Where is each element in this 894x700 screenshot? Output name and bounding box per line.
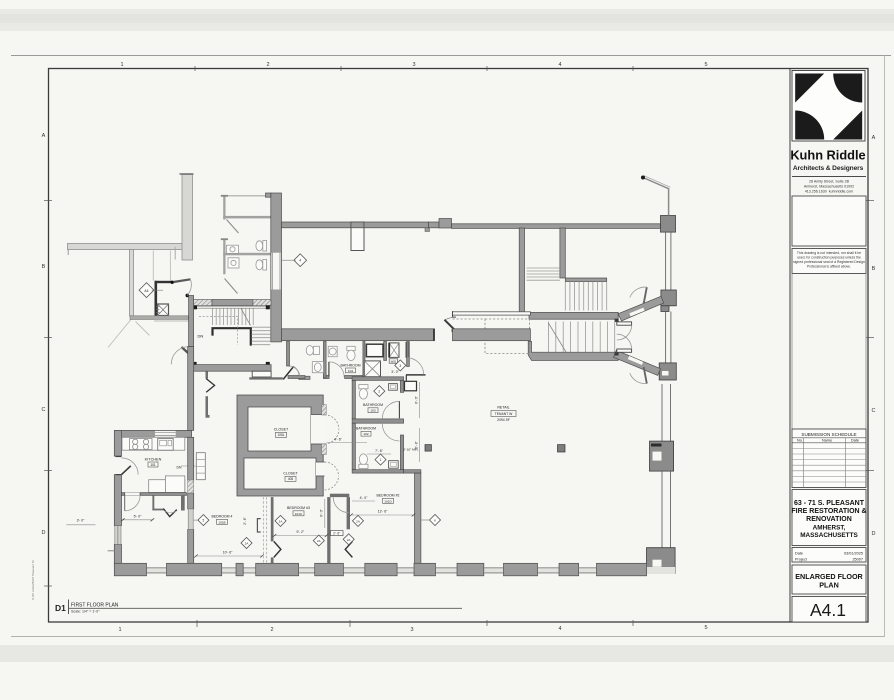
svg-text:105L: 105L [277, 433, 284, 437]
svg-text:KITCHEN: KITCHEN [145, 457, 162, 461]
svg-text:2: 2 [270, 627, 273, 633]
svg-text:FIRST FLOOR PLAN: FIRST FLOOR PLAN [71, 603, 119, 609]
svg-text:4: 4 [558, 62, 561, 68]
svg-text:5'- 0": 5'- 0" [134, 515, 142, 519]
svg-text:AMHERST,: AMHERST, [813, 525, 846, 532]
svg-text:Professional is affixed above.: Professional is affixed above. [807, 265, 851, 269]
svg-text:CLOSET: CLOSET [283, 472, 298, 476]
svg-text:D1: D1 [55, 603, 66, 613]
svg-text:Architects & Designers: Architects & Designers [793, 165, 864, 172]
svg-text:3'- 0": 3'- 0" [77, 519, 85, 523]
svg-text:104: 104 [348, 369, 353, 373]
svg-text:D: D [872, 531, 876, 537]
svg-text:103: 103 [370, 409, 375, 413]
svg-text:4: 4 [299, 259, 301, 263]
svg-text:10'- 6": 10'- 6" [223, 551, 233, 555]
svg-text:1: 1 [120, 62, 123, 68]
svg-text:2A: 2A [347, 538, 351, 542]
svg-text:C: C [42, 407, 46, 413]
svg-text:405: 405 [288, 477, 294, 481]
svg-text:1: 1 [118, 627, 121, 633]
svg-text:Date: Date [851, 439, 859, 443]
svg-text:Scale: 1/4" = 1'-0": Scale: 1/4" = 1'-0" [71, 610, 100, 614]
svg-text:signed professional seal of a: signed professional seal of a Registered… [793, 260, 865, 264]
svg-text:A: A [42, 133, 46, 139]
svg-text:5: 5 [704, 625, 707, 631]
svg-text:B: B [872, 266, 876, 272]
svg-text:4'- 6": 4'- 6" [334, 438, 342, 442]
svg-text:2: 2 [378, 390, 380, 394]
svg-text:2A: 2A [356, 519, 360, 523]
svg-text:28 Amity Street, Suite 2B: 28 Amity Street, Suite 2B [809, 180, 850, 184]
svg-text:3: 3 [410, 627, 413, 633]
svg-text:A: A [872, 135, 876, 141]
svg-text:W/D: W/D [391, 359, 396, 363]
svg-text:Name: Name [822, 439, 832, 443]
svg-text:RENOVATION: RENOVATION [806, 516, 852, 523]
svg-text:63 - 71 S. PLEASANT: 63 - 71 S. PLEASANT [794, 500, 865, 507]
svg-text:25007: 25007 [852, 558, 863, 562]
svg-text:S:\25 Jobs\25007 Pleasant St: S:\25 Jobs\25007 Pleasant St [31, 560, 35, 600]
svg-text:101B: 101B [218, 520, 225, 524]
svg-text:A4: A4 [144, 289, 148, 293]
svg-text:2'- 6": 2'- 6" [243, 516, 247, 524]
svg-text:MASSACHUSETTS: MASSACHUSETTS [800, 532, 858, 539]
svg-text:D: D [42, 530, 46, 536]
svg-text:12'- 6": 12'- 6" [378, 510, 388, 514]
svg-text:9'- 2": 9'- 2" [296, 530, 304, 534]
svg-text:3: 3 [412, 62, 415, 68]
svg-text:6'- 8": 6'- 8" [414, 440, 418, 448]
svg-text:This drawing is not intended,: This drawing is not intended, nor shall … [797, 251, 861, 255]
svg-text:C: C [872, 408, 876, 414]
svg-text:BATHROOM: BATHROOM [356, 427, 376, 431]
svg-text:B: B [42, 264, 46, 270]
svg-text:SUBMISSION SCHEDULE: SUBMISSION SCHEDULE [801, 432, 856, 437]
svg-text:101C: 101C [295, 512, 303, 516]
svg-text:CLOSET: CLOSET [274, 428, 289, 432]
svg-text:TENANT W: TENANT W [495, 412, 513, 416]
svg-text:2: 2 [266, 62, 269, 68]
svg-text:6'- 0": 6'- 0" [319, 508, 323, 516]
svg-text:Date: Date [795, 552, 803, 556]
svg-text:7'- 6": 7'- 6" [375, 449, 383, 453]
svg-text:DN: DN [198, 334, 204, 339]
svg-text:5: 5 [704, 62, 707, 68]
svg-text:101D: 101D [384, 499, 392, 503]
svg-text:1: 1 [380, 458, 382, 462]
svg-text:A4.1: A4.1 [810, 600, 846, 620]
svg-text:03/01/2025: 03/01/2025 [844, 552, 863, 556]
svg-text:RETAIL: RETAIL [497, 406, 509, 410]
svg-text:6'- 0": 6'- 0" [414, 395, 418, 403]
svg-text:BEDROOM #3: BEDROOM #3 [287, 506, 310, 510]
svg-text:102: 102 [363, 432, 368, 436]
svg-text:3: 3 [399, 364, 401, 368]
svg-text:BEDROOM #2: BEDROOM #2 [377, 494, 400, 498]
svg-text:Amherst, Massachusetts 01002: Amherst, Massachusetts 01002 [804, 185, 854, 189]
svg-text:413.256.1630 kuhnriddle.com: 413.256.1630 kuhnriddle.com [805, 190, 853, 194]
svg-text:PLAN: PLAN [819, 581, 839, 590]
svg-text:used, for construction purpose: used, for construction purposes unless t… [797, 256, 861, 260]
svg-text:Kuhn Riddle: Kuhn Riddle [790, 148, 865, 163]
svg-text:101: 101 [150, 463, 156, 467]
svg-text:FIRE RESTORATION &: FIRE RESTORATION & [791, 508, 866, 515]
svg-text:3'- 0": 3'- 0" [391, 370, 399, 374]
svg-text:2094 SF: 2094 SF [497, 418, 510, 422]
svg-text:2A: 2A [317, 539, 321, 543]
svg-text:2'- 6": 2'- 6" [333, 532, 340, 536]
svg-text:4'- 0": 4'- 0" [360, 496, 368, 500]
svg-text:2A: 2A [245, 542, 249, 546]
svg-text:4: 4 [558, 626, 561, 632]
svg-text:No.: No. [797, 439, 803, 443]
svg-text:2A: 2A [279, 519, 283, 523]
svg-text:BEDROOM 4: BEDROOM 4 [211, 515, 232, 519]
svg-text:BATHROOM: BATHROOM [363, 403, 383, 407]
svg-text:Project: Project [795, 558, 808, 562]
svg-text:5: 5 [203, 519, 205, 523]
svg-text:BATHROOM: BATHROOM [341, 364, 361, 368]
